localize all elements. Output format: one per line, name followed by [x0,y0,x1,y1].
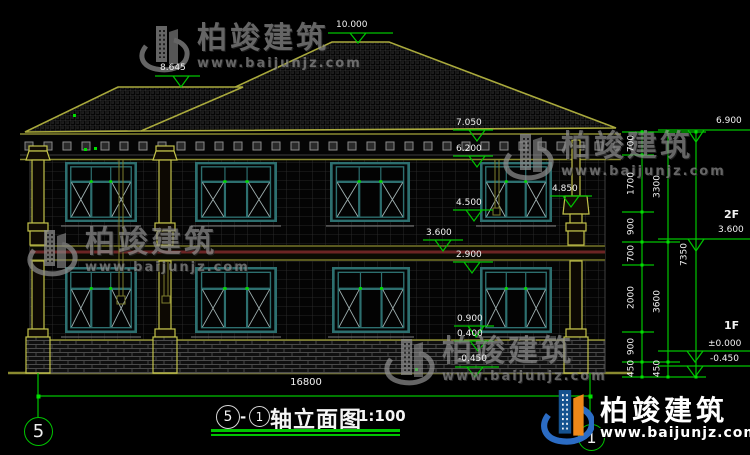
dim-7350: 7350 [680,238,691,272]
elev-4500-label: 4.500 [456,198,482,208]
elev-2900-label: 2.900 [456,250,482,260]
elev-right-eave-label: 6.900 [716,116,742,126]
cad-elevation-screenshot: 10.000 8.645 7.050 6.200 4.850 4.500 3.6… [0,0,750,455]
watermark-logo-icon [500,130,554,186]
window-2f-3 [331,163,409,221]
footer-logo-brand: 柏竣建筑 [600,396,750,425]
elev-neg0450-label: -0.450 [458,354,487,364]
dim-3300: 3300 [653,170,664,204]
floor1-label: 1F [724,319,739,332]
watermark-logo-icon [24,226,78,282]
dim-700a: 700 [627,127,638,161]
dim-700b: 700 [627,237,638,271]
footer-logo-icon [538,382,594,452]
dim-450b: 450 [653,352,664,386]
watermark-brand: 柏竣建筑 [85,226,250,259]
title-underline-thick [211,429,400,432]
elev-wing-ridge-label: 8.645 [160,63,186,73]
elev-0900-label: 0.900 [457,314,483,324]
window-2f-2 [196,163,276,221]
floor2-label: 2F [724,208,739,221]
elev-4850-label: 4.850 [552,184,578,194]
dim-total-width: 16800 [283,378,329,388]
watermark-site: www.baijunjz.com [561,164,726,179]
title-axis-end: 1 [249,406,270,427]
elev-right-3600-label: 3.600 [718,225,744,235]
axis-bubble-5: 5 [24,417,53,446]
watermark-right: 柏竣建筑 www.baijunjz.com [500,130,726,186]
watermark-left: 柏竣建筑 www.baijunjz.com [24,226,250,282]
dim-3600: 3600 [653,285,664,319]
elev-right-zero-label: ±0.000 [708,339,741,349]
title-axis-start: 5 [216,405,240,429]
elev-right-ground-label: -0.450 [710,354,739,364]
window-1f-3 [333,268,409,332]
title-dash: - [240,408,246,426]
window-2f-1 [66,163,136,221]
elev-ridge-label: 10.000 [336,20,368,30]
window-1f-4 [481,268,551,332]
dim-2000: 2000 [627,281,638,315]
elev-3600-label: 3.600 [426,228,452,238]
elev-6200-label: 6.200 [456,144,482,154]
dim-450a: 450 [627,352,638,386]
watermark-site: www.baijunjz.com [85,260,250,275]
watermark-brand: 柏竣建筑 [561,130,726,163]
watermark-site: www.baijunjz.com [197,56,362,71]
title-underline-thin [211,434,400,436]
footer-logo: 柏竣建筑 www.baijunjz.com [538,382,750,452]
elev-7050-label: 7.050 [456,118,482,128]
drawing-scale: 1:100 [358,407,406,425]
footer-logo-site: www.baijunjz.com [600,425,750,441]
watermark-logo-icon [381,335,435,391]
dim-1700: 1700 [627,167,638,201]
elev-0400-label: 0.400 [457,329,483,339]
